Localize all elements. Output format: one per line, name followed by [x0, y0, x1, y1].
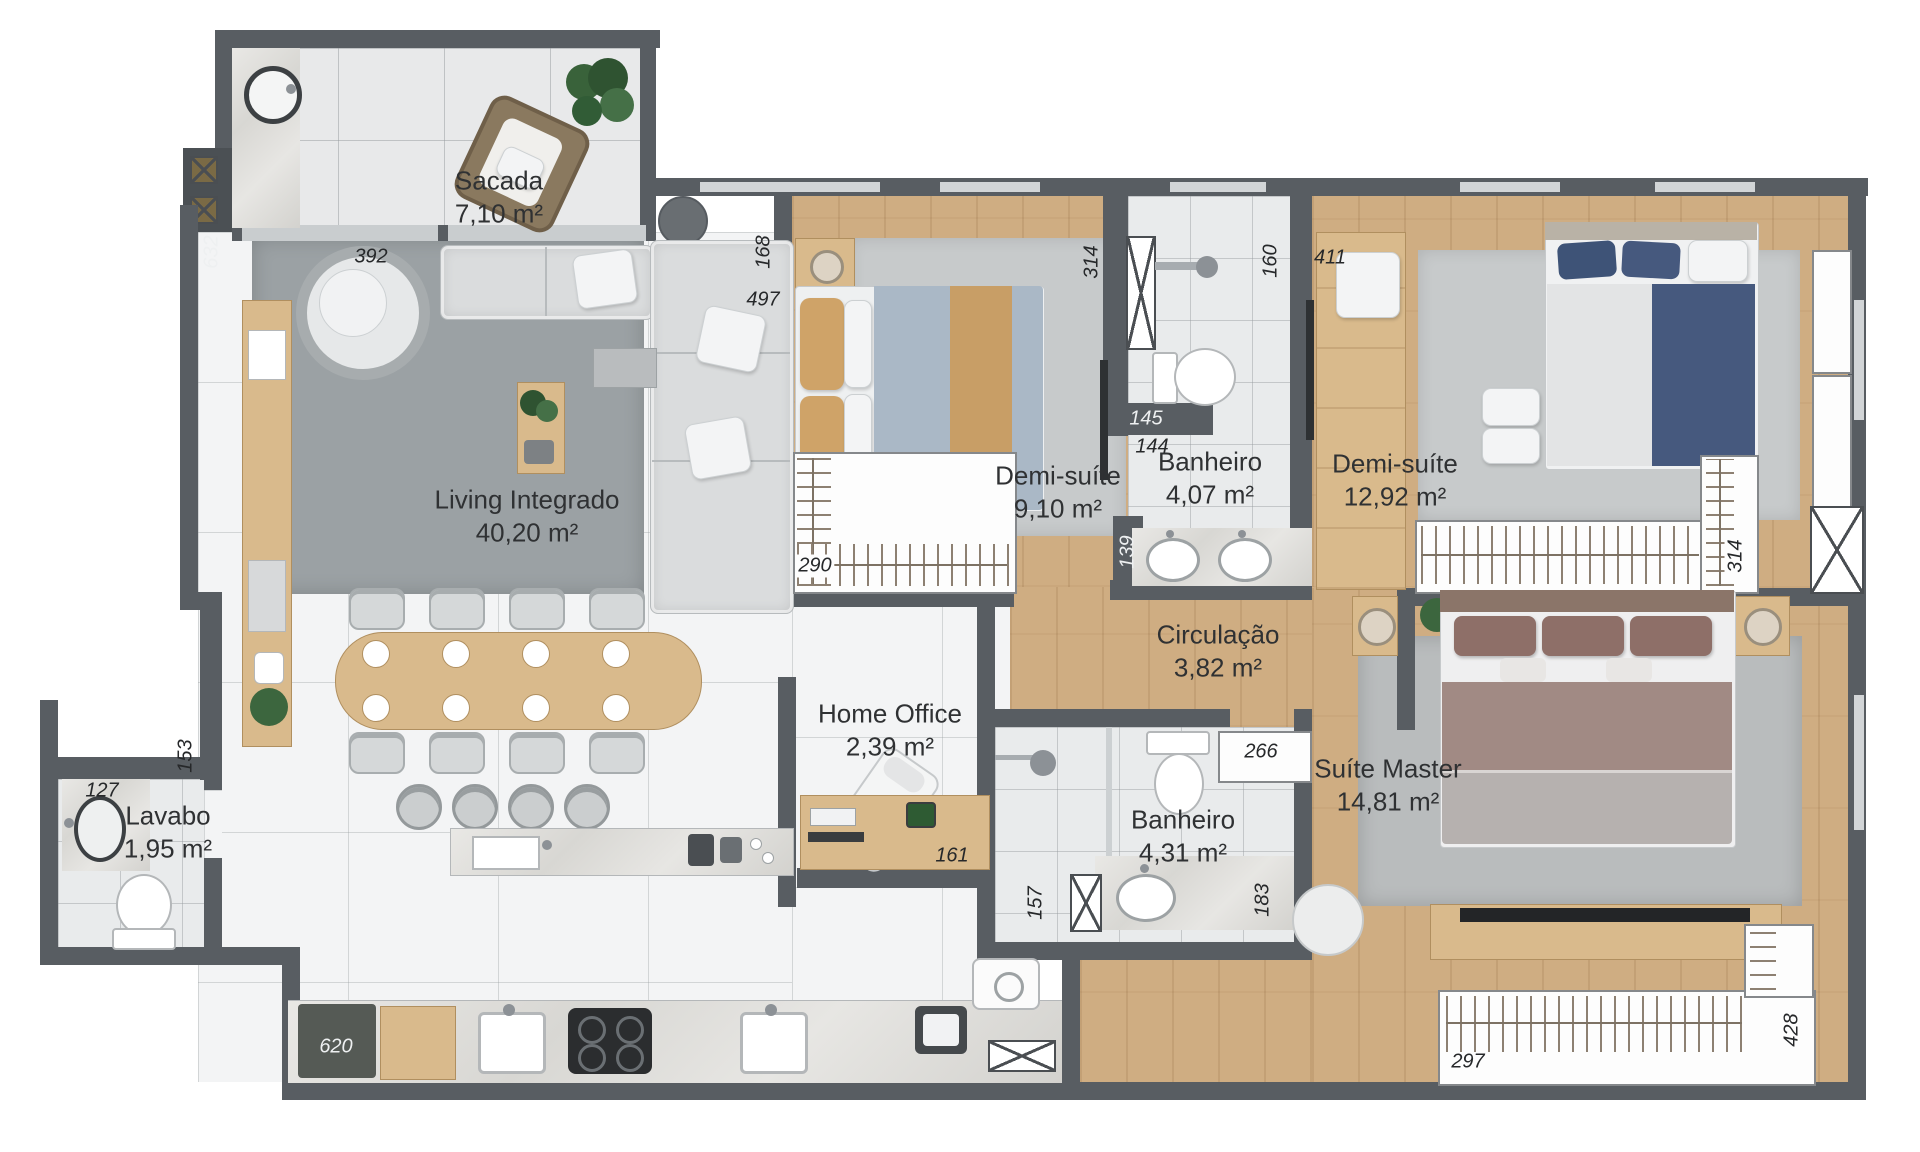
plate-3 — [522, 640, 550, 668]
corner-side-table — [658, 196, 708, 246]
window-top-1 — [700, 180, 880, 194]
demi2-pouf-2 — [1482, 428, 1540, 464]
demi1-lamp — [810, 250, 844, 284]
plate-2 — [442, 640, 470, 668]
dining-chair-3 — [509, 588, 565, 630]
wall-suite-ext-left — [1062, 942, 1080, 1100]
bath1-sink-2 — [1218, 538, 1272, 582]
demi2-pillow-navy-1 — [1557, 240, 1617, 280]
wall-left-living — [180, 205, 198, 592]
burner-4 — [616, 1044, 644, 1072]
suite-lamp-left — [1358, 608, 1396, 646]
cooktop — [568, 1008, 652, 1074]
coffee-table-tray — [524, 440, 554, 464]
dim-290: 290 — [795, 555, 834, 578]
balcony-sink — [244, 66, 302, 124]
kitchen-faucet-2 — [765, 1004, 777, 1016]
plate-8 — [602, 694, 630, 722]
kitchen-sink-2 — [740, 1012, 808, 1074]
room-name: Banheiro — [1158, 446, 1262, 479]
dim-297: 297 — [1451, 1051, 1484, 1074]
suite-tv — [1460, 908, 1750, 922]
wall-balcony-right — [640, 48, 656, 225]
dim-139: 139 — [1117, 535, 1140, 568]
sofa-pillow-3 — [684, 415, 753, 481]
room-name: Sacada — [455, 165, 543, 198]
lavabo-toilet-tank — [112, 928, 176, 950]
label-bathroom-1: Banheiro 4,07 m² — [1158, 446, 1262, 511]
office-monitor — [808, 832, 864, 842]
window-right-2 — [1852, 695, 1866, 830]
office-keyboard — [810, 808, 856, 826]
label-sacada: Sacada 7,10 m² — [455, 165, 543, 230]
room-area: 7,10 m² — [455, 197, 543, 230]
office-lamp-button — [906, 802, 936, 828]
room-area: 12,92 m² — [1332, 480, 1458, 513]
dim-144: 144 — [1135, 436, 1168, 459]
wall-lavabo-recess — [200, 610, 222, 780]
room-area: 14,81 m² — [1314, 785, 1461, 818]
dim-428: 428 — [1781, 1013, 1804, 1046]
room-area: 4,31 m² — [1131, 836, 1235, 869]
label-living: Living Integrado 40,20 m² — [434, 484, 619, 549]
bath1-shower-door — [1126, 236, 1156, 350]
wall-balcony-left — [215, 30, 232, 152]
plate-6 — [442, 694, 470, 722]
dim-157: 157 — [1025, 886, 1048, 919]
washer — [972, 958, 1040, 1010]
plate-7 — [522, 694, 550, 722]
dining-table — [335, 632, 702, 730]
room-name: Living Integrado — [434, 484, 619, 517]
demi2-pillow-navy-2 — [1621, 241, 1681, 280]
suite-entry-floor — [1080, 960, 1312, 1085]
bath1-sink-1 — [1146, 538, 1200, 582]
demi1-pillow-white-1 — [844, 300, 872, 388]
demi2-duvet-light — [1547, 284, 1652, 466]
right-panel-2 — [1812, 375, 1852, 509]
room-name: Home Office — [818, 698, 962, 731]
dining-chair-5 — [349, 732, 405, 774]
room-area: 3,82 m² — [1157, 651, 1280, 684]
demi2-closet-rod-h — [1421, 554, 1699, 556]
suite-pillow-small-1 — [1500, 658, 1546, 682]
room-name: Suíte Master — [1314, 753, 1461, 786]
room-area: 2,39 m² — [818, 730, 962, 763]
wall-balcony-top — [215, 30, 660, 48]
wall-suite-entry — [1397, 588, 1415, 730]
hatch-barbecue-1 — [190, 156, 218, 184]
service-sink-basin — [923, 1014, 959, 1046]
dining-chair-8 — [589, 732, 645, 774]
dining-chair-4 — [589, 588, 645, 630]
suite-closet-rod — [1446, 1022, 1742, 1024]
room-name: Circulação — [1157, 619, 1280, 652]
suite-closet-rail-v — [1750, 928, 1776, 990]
dim-160: 160 — [1260, 244, 1283, 277]
dining-chair-6 — [429, 732, 485, 774]
demi2-pillow-white — [1688, 240, 1748, 282]
dim-411: 411 — [1314, 247, 1346, 270]
bar-stool-3 — [508, 784, 554, 830]
toaster — [720, 837, 742, 863]
dim-632: 632 — [201, 235, 224, 268]
island-cup-2 — [762, 852, 774, 864]
suite-duvet — [1442, 682, 1732, 844]
demi1-pillow-tan-1 — [800, 298, 844, 390]
window-top-4 — [1460, 180, 1560, 194]
suite-pouf — [1292, 884, 1364, 956]
label-circulacao: Circulação 3,82 m² — [1157, 619, 1280, 684]
window-top-5 — [1655, 180, 1755, 194]
dim-497: 497 — [746, 289, 779, 312]
burner-3 — [578, 1044, 606, 1072]
bar-stool-1 — [396, 784, 442, 830]
hatch-ac — [1810, 506, 1864, 594]
dim-314-a: 314 — [1081, 245, 1104, 278]
kitchen-cabinet — [380, 1006, 456, 1080]
window-top-2 — [940, 180, 1040, 194]
lavabo-faucet — [64, 818, 74, 828]
bath1-toilet-bowl — [1174, 348, 1236, 406]
sideboard-vase — [254, 652, 284, 684]
demi2-closet-rod-v — [1719, 459, 1721, 586]
balcony-faucet — [286, 84, 296, 94]
dim-183: 183 — [1252, 883, 1275, 916]
demi2-duvet-navy — [1652, 284, 1755, 466]
sideboard-plant — [250, 688, 288, 726]
dining-chair-7 — [509, 732, 565, 774]
room-area: 1,95 m² — [124, 832, 212, 865]
wall-bath2-left — [977, 607, 995, 960]
sideboard-tray — [248, 560, 286, 632]
wall-left-step — [180, 592, 222, 610]
washer-lid — [994, 972, 1024, 1002]
plate-1 — [362, 640, 390, 668]
plate-4 — [602, 640, 630, 668]
suite-pillow-2 — [1542, 616, 1624, 656]
label-suite-master: Suíte Master 14,81 m² — [1314, 753, 1461, 818]
island-sink — [472, 836, 540, 870]
room-name: Demi-suíte — [995, 460, 1121, 493]
demi2-headboard — [1545, 222, 1757, 240]
room-area: 4,07 m² — [1158, 478, 1262, 511]
bath2-glass — [1106, 727, 1112, 877]
sofa-cushion-line-3 — [545, 247, 547, 316]
dim-127: 127 — [85, 780, 118, 803]
right-panel-1 — [1812, 250, 1852, 374]
side-table-square — [593, 348, 657, 388]
bath1-shower-head — [1196, 256, 1218, 278]
suite-pillow-small-2 — [1606, 658, 1652, 682]
lavabo-sink — [74, 796, 126, 862]
bath2-shower-head — [1030, 750, 1056, 776]
coffee-machine — [688, 834, 714, 866]
island-cup-1 — [750, 838, 762, 850]
demi2-tv — [1306, 300, 1314, 440]
window-right-1 — [1852, 300, 1866, 420]
bar-stool-4 — [564, 784, 610, 830]
wall-lavabo-left — [40, 700, 58, 965]
dining-chair-1 — [349, 588, 405, 630]
label-demi-suite-2: Demi-suíte 12,92 m² — [1332, 448, 1458, 513]
suite-duvet-fold — [1442, 770, 1732, 773]
label-home-office: Home Office 2,39 m² — [818, 698, 962, 763]
dim-392: 392 — [354, 246, 387, 269]
bath1-faucet-1 — [1166, 530, 1174, 538]
dim-153: 153 — [175, 739, 198, 772]
service-sink — [915, 1006, 967, 1054]
coffee-table-plant-2 — [536, 400, 558, 422]
bath1-faucet-2 — [1238, 530, 1246, 538]
sofa-pillow-1 — [572, 248, 639, 310]
room-name: Demi-suíte — [1332, 448, 1458, 481]
room-area: 40,20 m² — [434, 516, 619, 549]
suite-lamp-right — [1744, 608, 1782, 646]
suite-closet-rail — [1446, 996, 1742, 1052]
label-lavabo: Lavabo 1,95 m² — [124, 800, 212, 865]
suite-pillow-1 — [1454, 616, 1536, 656]
suite-headboard — [1440, 590, 1734, 612]
plate-5 — [362, 694, 390, 722]
wall-bath2-bottom — [995, 942, 1312, 960]
balcony-plant-3 — [600, 88, 634, 122]
sill-post-3 — [646, 225, 656, 241]
suite-pillow-3 — [1630, 616, 1712, 656]
demi2-pouf-1 — [1482, 388, 1540, 426]
sofa-pillow-2 — [695, 304, 768, 374]
balcony-plant-4 — [572, 96, 602, 126]
room-name: Lavabo — [124, 800, 212, 833]
floor-plan: Sacada 7,10 m² Living Integrado 40,20 m²… — [0, 0, 1920, 1152]
dim-620: 620 — [319, 1036, 352, 1059]
dim-161: 161 — [935, 845, 968, 868]
bath2-toilet-tank — [1146, 731, 1210, 755]
burner-2 — [616, 1016, 644, 1044]
room-area: 9,10 m² — [995, 492, 1121, 525]
island-faucet — [542, 840, 552, 850]
dim-266: 266 — [1244, 741, 1277, 764]
room-name: Banheiro — [1131, 804, 1235, 837]
wall-bath2-top — [977, 709, 1230, 727]
window-top-3 — [1170, 180, 1266, 194]
sill-post-2 — [438, 225, 448, 241]
dim-314-b: 314 — [1725, 536, 1748, 575]
bar-stool-2 — [452, 784, 498, 830]
kitchen-sink — [478, 1012, 546, 1074]
label-demi-suite-1: Demi-suíte 9,10 m² — [995, 460, 1121, 525]
lavabo-toilet-bowl — [116, 874, 172, 936]
hatch-kitchen — [988, 1040, 1056, 1072]
armchair-cushion — [319, 269, 387, 337]
bath2-sink — [1116, 874, 1176, 922]
sideboard-books — [248, 330, 286, 380]
hatch-shaft — [1070, 874, 1102, 932]
label-bathroom-2: Banheiro 4,31 m² — [1131, 804, 1235, 869]
dining-chair-2 — [429, 588, 485, 630]
wall-home-office-bottom — [797, 868, 995, 888]
dim-168: 168 — [753, 235, 776, 268]
burner-1 — [578, 1016, 606, 1044]
kitchen-faucet — [503, 1004, 515, 1016]
dim-145: 145 — [1129, 408, 1162, 431]
